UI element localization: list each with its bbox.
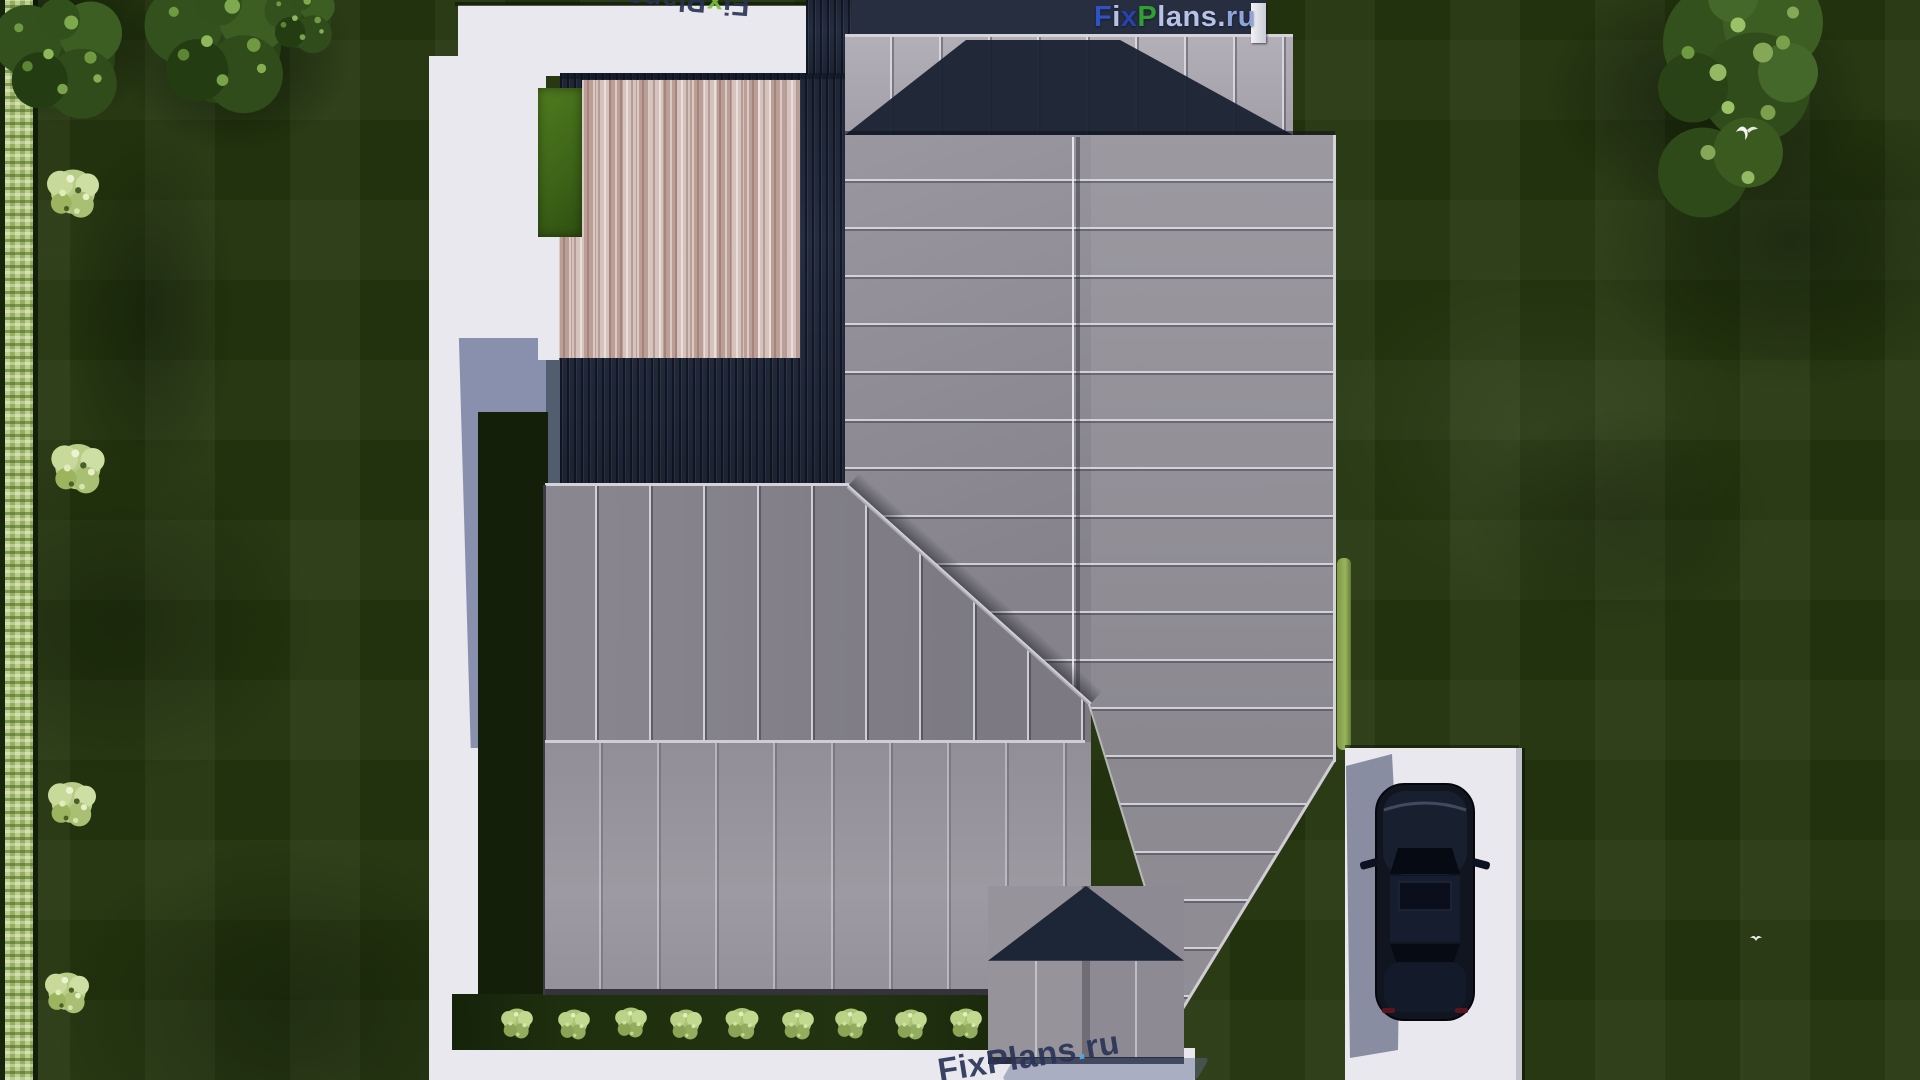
pergola-wood-canopy [582,80,800,358]
roof-lower-eave-shadow [545,989,992,995]
shrub-left-4 [34,956,100,1022]
roof-valley-shadow [1076,137,1080,703]
car [1338,748,1534,1060]
roof-right-eave-highlight [1333,135,1336,762]
bush-row-1 [492,996,542,1046]
hedge-outer-edge [0,0,5,1080]
bush-row-2 [549,997,599,1047]
hedge-right-of-house [1337,558,1351,750]
bush-row-3 [606,995,656,1045]
pergola-wood-lower [558,237,584,358]
roof-left-plane-top-highlight [545,483,849,486]
terrace-white-strip [538,237,559,360]
watermark-logo: FixPlans.ru [1094,1,1256,34]
bush-row-7 [826,996,876,1046]
gable-panel-seam-right [1135,961,1137,1057]
shaded-grass-strip [478,412,548,998]
bird-icon [1733,120,1761,142]
deck-shadow-edge [560,73,852,79]
hedge-square-terrace [538,88,582,237]
bird-icon-small [1748,930,1764,946]
bush-row-6 [773,997,823,1047]
aerial-site-render: FixPlans.ru FixPlans.ru FixPlans.ru [0,0,1920,1080]
left-boundary-hedge [5,0,33,1080]
shrub-left-1 [34,150,112,228]
roof-valley-line [1072,137,1074,703]
shrub-left-3 [36,764,108,836]
bush-row-5 [716,995,768,1047]
bush-row-4 [661,997,711,1047]
roof-ridge-highlight [845,34,1293,37]
roof-lower-ridge-highlight [545,740,1085,743]
bush-row-8 [886,997,936,1047]
shrub-left-2 [38,424,118,504]
tree-top-left-3 [255,0,350,70]
roof-right-plane-seams [1090,135,1336,1010]
bush-row-9 [941,996,991,1046]
